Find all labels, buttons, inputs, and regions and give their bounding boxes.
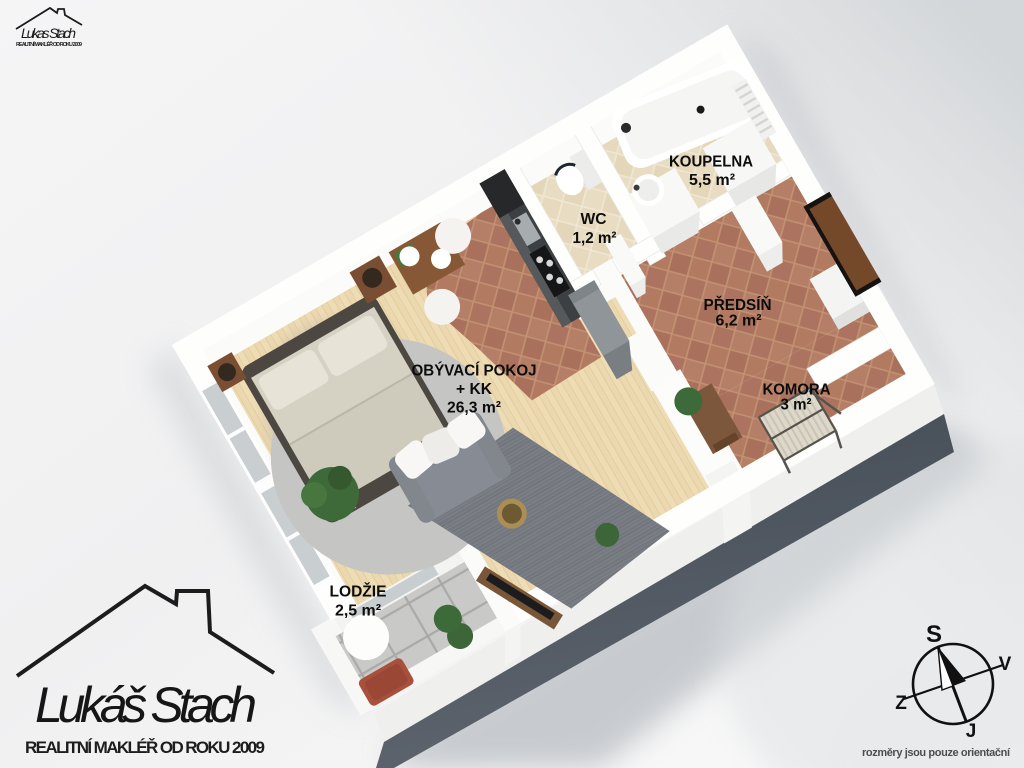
svg-text:REALITNÍ MAKLÉŘ OD ROKU 2009: REALITNÍ MAKLÉŘ OD ROKU 2009 bbox=[25, 738, 265, 757]
svg-text:+ KK: + KK bbox=[456, 381, 492, 398]
svg-text:OBÝVACÍ POKOJ: OBÝVACÍ POKOJ bbox=[412, 361, 537, 380]
svg-text:PŘEDSÍŇ: PŘEDSÍŇ bbox=[704, 295, 772, 314]
svg-text:REALITNÍ MAKLÉŘ OD ROKU 2009: REALITNÍ MAKLÉŘ OD ROKU 2009 bbox=[16, 40, 82, 48]
svg-text:6,2 m²: 6,2 m² bbox=[716, 313, 762, 330]
svg-text:S: S bbox=[926, 621, 942, 648]
svg-text:5,5 m²: 5,5 m² bbox=[689, 172, 735, 189]
svg-text:3 m²: 3 m² bbox=[781, 397, 812, 414]
svg-text:1,2 m²: 1,2 m² bbox=[573, 230, 617, 247]
svg-text:WC: WC bbox=[581, 211, 607, 228]
svg-text:Z: Z bbox=[895, 693, 907, 714]
svg-text:LODŽIE: LODŽIE bbox=[330, 582, 387, 601]
svg-text:KOUPELNA: KOUPELNA bbox=[669, 154, 753, 171]
svg-text:Lukas Stach: Lukas Stach bbox=[21, 25, 76, 41]
svg-text:rozměry jsou pouze orientační: rozměry jsou pouze orientační bbox=[862, 747, 1011, 759]
svg-text:J: J bbox=[966, 721, 977, 742]
svg-text:26,3 m²: 26,3 m² bbox=[447, 400, 501, 417]
svg-text:V: V bbox=[999, 654, 1012, 675]
svg-text:2,5 m²: 2,5 m² bbox=[335, 603, 381, 620]
svg-text:Lukáš Stach: Lukáš Stach bbox=[35, 677, 257, 733]
